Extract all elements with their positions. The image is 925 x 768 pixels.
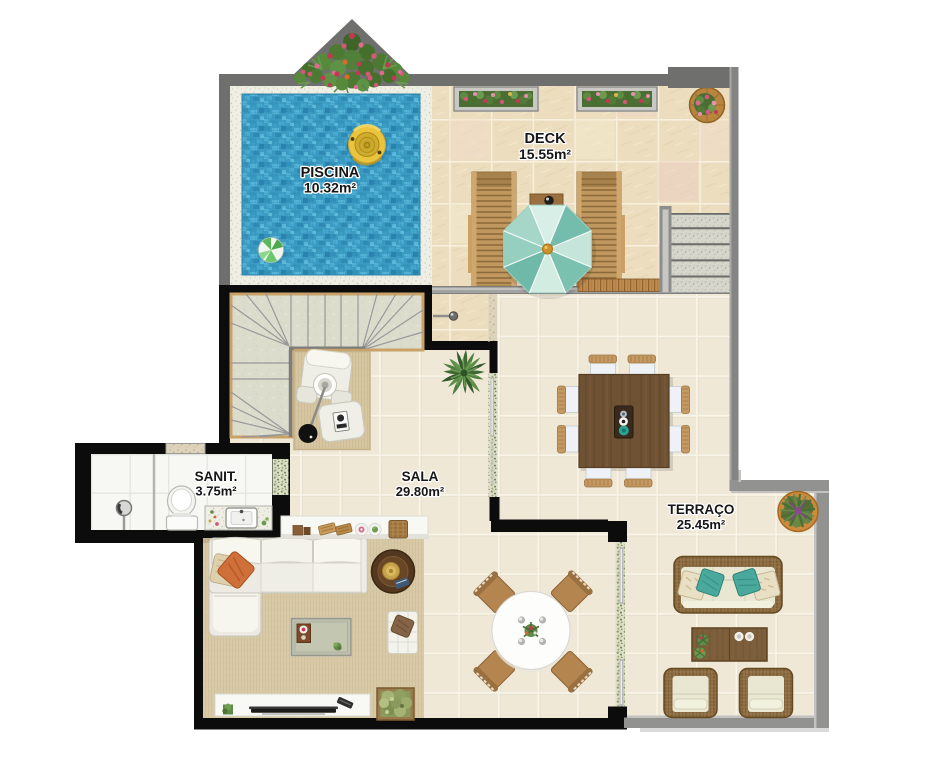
- svg-text:15.55m²: 15.55m²: [519, 146, 571, 162]
- svg-text:TERRAÇO: TERRAÇO: [668, 502, 735, 517]
- svg-text:SALA: SALA: [402, 469, 439, 484]
- svg-text:SANIT.: SANIT.: [195, 469, 238, 484]
- svg-text:DECK: DECK: [524, 131, 566, 147]
- svg-text:3.75m²: 3.75m²: [195, 484, 237, 499]
- svg-text:29.80m²: 29.80m²: [396, 484, 445, 499]
- svg-text:25.45m²: 25.45m²: [677, 517, 726, 532]
- svg-text:10.32m²: 10.32m²: [304, 180, 356, 196]
